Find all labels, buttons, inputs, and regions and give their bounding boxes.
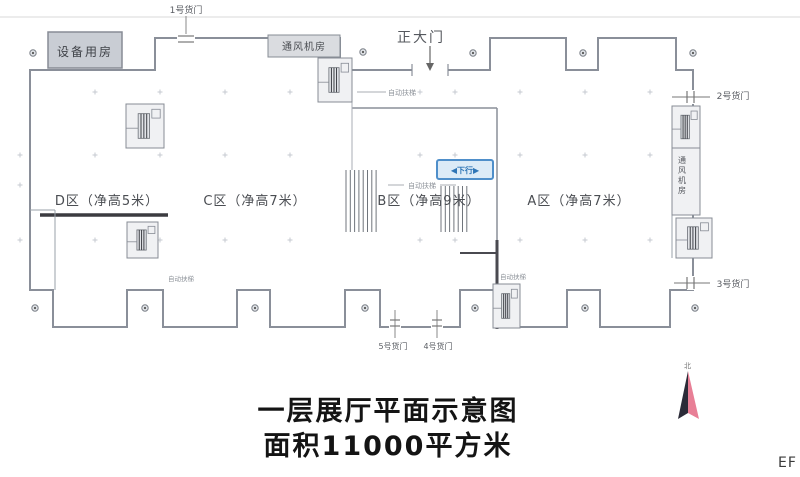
compass: 北 bbox=[678, 362, 699, 419]
grid-mark bbox=[648, 153, 653, 158]
grid-mark bbox=[648, 90, 653, 95]
plan-decoration bbox=[18, 49, 713, 328]
grid-mark bbox=[453, 153, 458, 158]
grid-mark bbox=[418, 153, 423, 158]
equipment-room-label: 设备用房 bbox=[57, 44, 113, 59]
zone-label-a: A区（净高7米） bbox=[527, 193, 630, 209]
grid-mark bbox=[583, 238, 588, 243]
plan-title-line2: 面积11000平方米 bbox=[264, 430, 513, 462]
grid-mark bbox=[648, 238, 653, 243]
grid-mark bbox=[223, 238, 228, 243]
grid-mark bbox=[418, 90, 423, 95]
floor-plan-page: 设备用房 通风机房 通风机房 D区（净高5米） C区（净高7米） B区（净高9米… bbox=[0, 0, 800, 477]
grid-mark bbox=[93, 238, 98, 243]
down-direction-badge-label: ◀下行▶ bbox=[451, 165, 480, 175]
cargo-door-5-label: 5号货门 bbox=[378, 341, 407, 351]
main-gate-label: 正大门 bbox=[397, 30, 445, 46]
plan-title-line1: 一层展厅平面示意图 bbox=[258, 395, 519, 427]
cargo-door-4-label: 4号货门 bbox=[423, 341, 452, 351]
cargo-door-3-label: 3号货门 bbox=[717, 278, 750, 290]
building-outline bbox=[30, 38, 693, 327]
grid-mark bbox=[288, 238, 293, 243]
grid-mark bbox=[18, 153, 23, 158]
grid-mark bbox=[518, 238, 523, 243]
column-grid-dot bbox=[254, 307, 256, 309]
column-grid-dot bbox=[692, 52, 694, 54]
zone-label-c: C区（净高7米） bbox=[203, 193, 306, 209]
grid-mark bbox=[18, 183, 23, 188]
grid-mark bbox=[518, 90, 523, 95]
column-grid-dot bbox=[582, 52, 584, 54]
grid-mark bbox=[18, 238, 23, 243]
grid-mark bbox=[288, 153, 293, 158]
grid-mark bbox=[583, 90, 588, 95]
grid-mark bbox=[158, 153, 163, 158]
escalator-annotation-top: 自动扶梯 bbox=[388, 88, 416, 97]
column-grid-dot bbox=[32, 52, 34, 54]
column-grid-dot bbox=[584, 307, 586, 309]
north-label: 北 bbox=[684, 362, 691, 370]
grid-mark bbox=[158, 90, 163, 95]
grid-mark bbox=[583, 153, 588, 158]
escalator-annotation-b: 自动扶梯 bbox=[408, 181, 436, 190]
north-arrow-pink-half bbox=[688, 371, 699, 419]
column-grid-dot bbox=[364, 307, 366, 309]
grid-mark bbox=[223, 153, 228, 158]
grid-mark bbox=[453, 90, 458, 95]
grid-mark bbox=[453, 238, 458, 243]
column-grid-dot bbox=[694, 307, 696, 309]
vent-room-right-label: 通风机房 bbox=[678, 155, 687, 196]
floor-plan: 设备用房 通风机房 通风机房 D区（净高5米） C区（净高7米） B区（净高9米… bbox=[0, 0, 800, 477]
vent-room-top-label: 通风机房 bbox=[282, 40, 326, 53]
grid-mark bbox=[223, 90, 228, 95]
grid-mark bbox=[93, 153, 98, 158]
column-grid-dot bbox=[362, 51, 364, 53]
grid-mark bbox=[288, 90, 293, 95]
column-grid-dot bbox=[144, 307, 146, 309]
column-grid-dot bbox=[474, 307, 476, 309]
escalator-annotation-left: 自动扶梯 bbox=[168, 274, 195, 283]
cargo-door-1-label: 1号货门 bbox=[170, 4, 203, 16]
zone-label-b: B区（净高9米） bbox=[377, 193, 480, 209]
zone-label-d: D区（净高5米） bbox=[55, 193, 159, 209]
cargo-door-2-label: 2号货门 bbox=[717, 90, 750, 102]
grid-mark bbox=[418, 238, 423, 243]
grid-mark bbox=[93, 90, 98, 95]
escalator-annotation-mid: 自动扶梯 bbox=[500, 272, 527, 281]
north-arrow-dark-half bbox=[678, 371, 688, 419]
column-grid-dot bbox=[34, 307, 36, 309]
column-grid-dot bbox=[472, 52, 474, 54]
watermark-ef: EF bbox=[778, 455, 797, 471]
grid-mark bbox=[518, 153, 523, 158]
